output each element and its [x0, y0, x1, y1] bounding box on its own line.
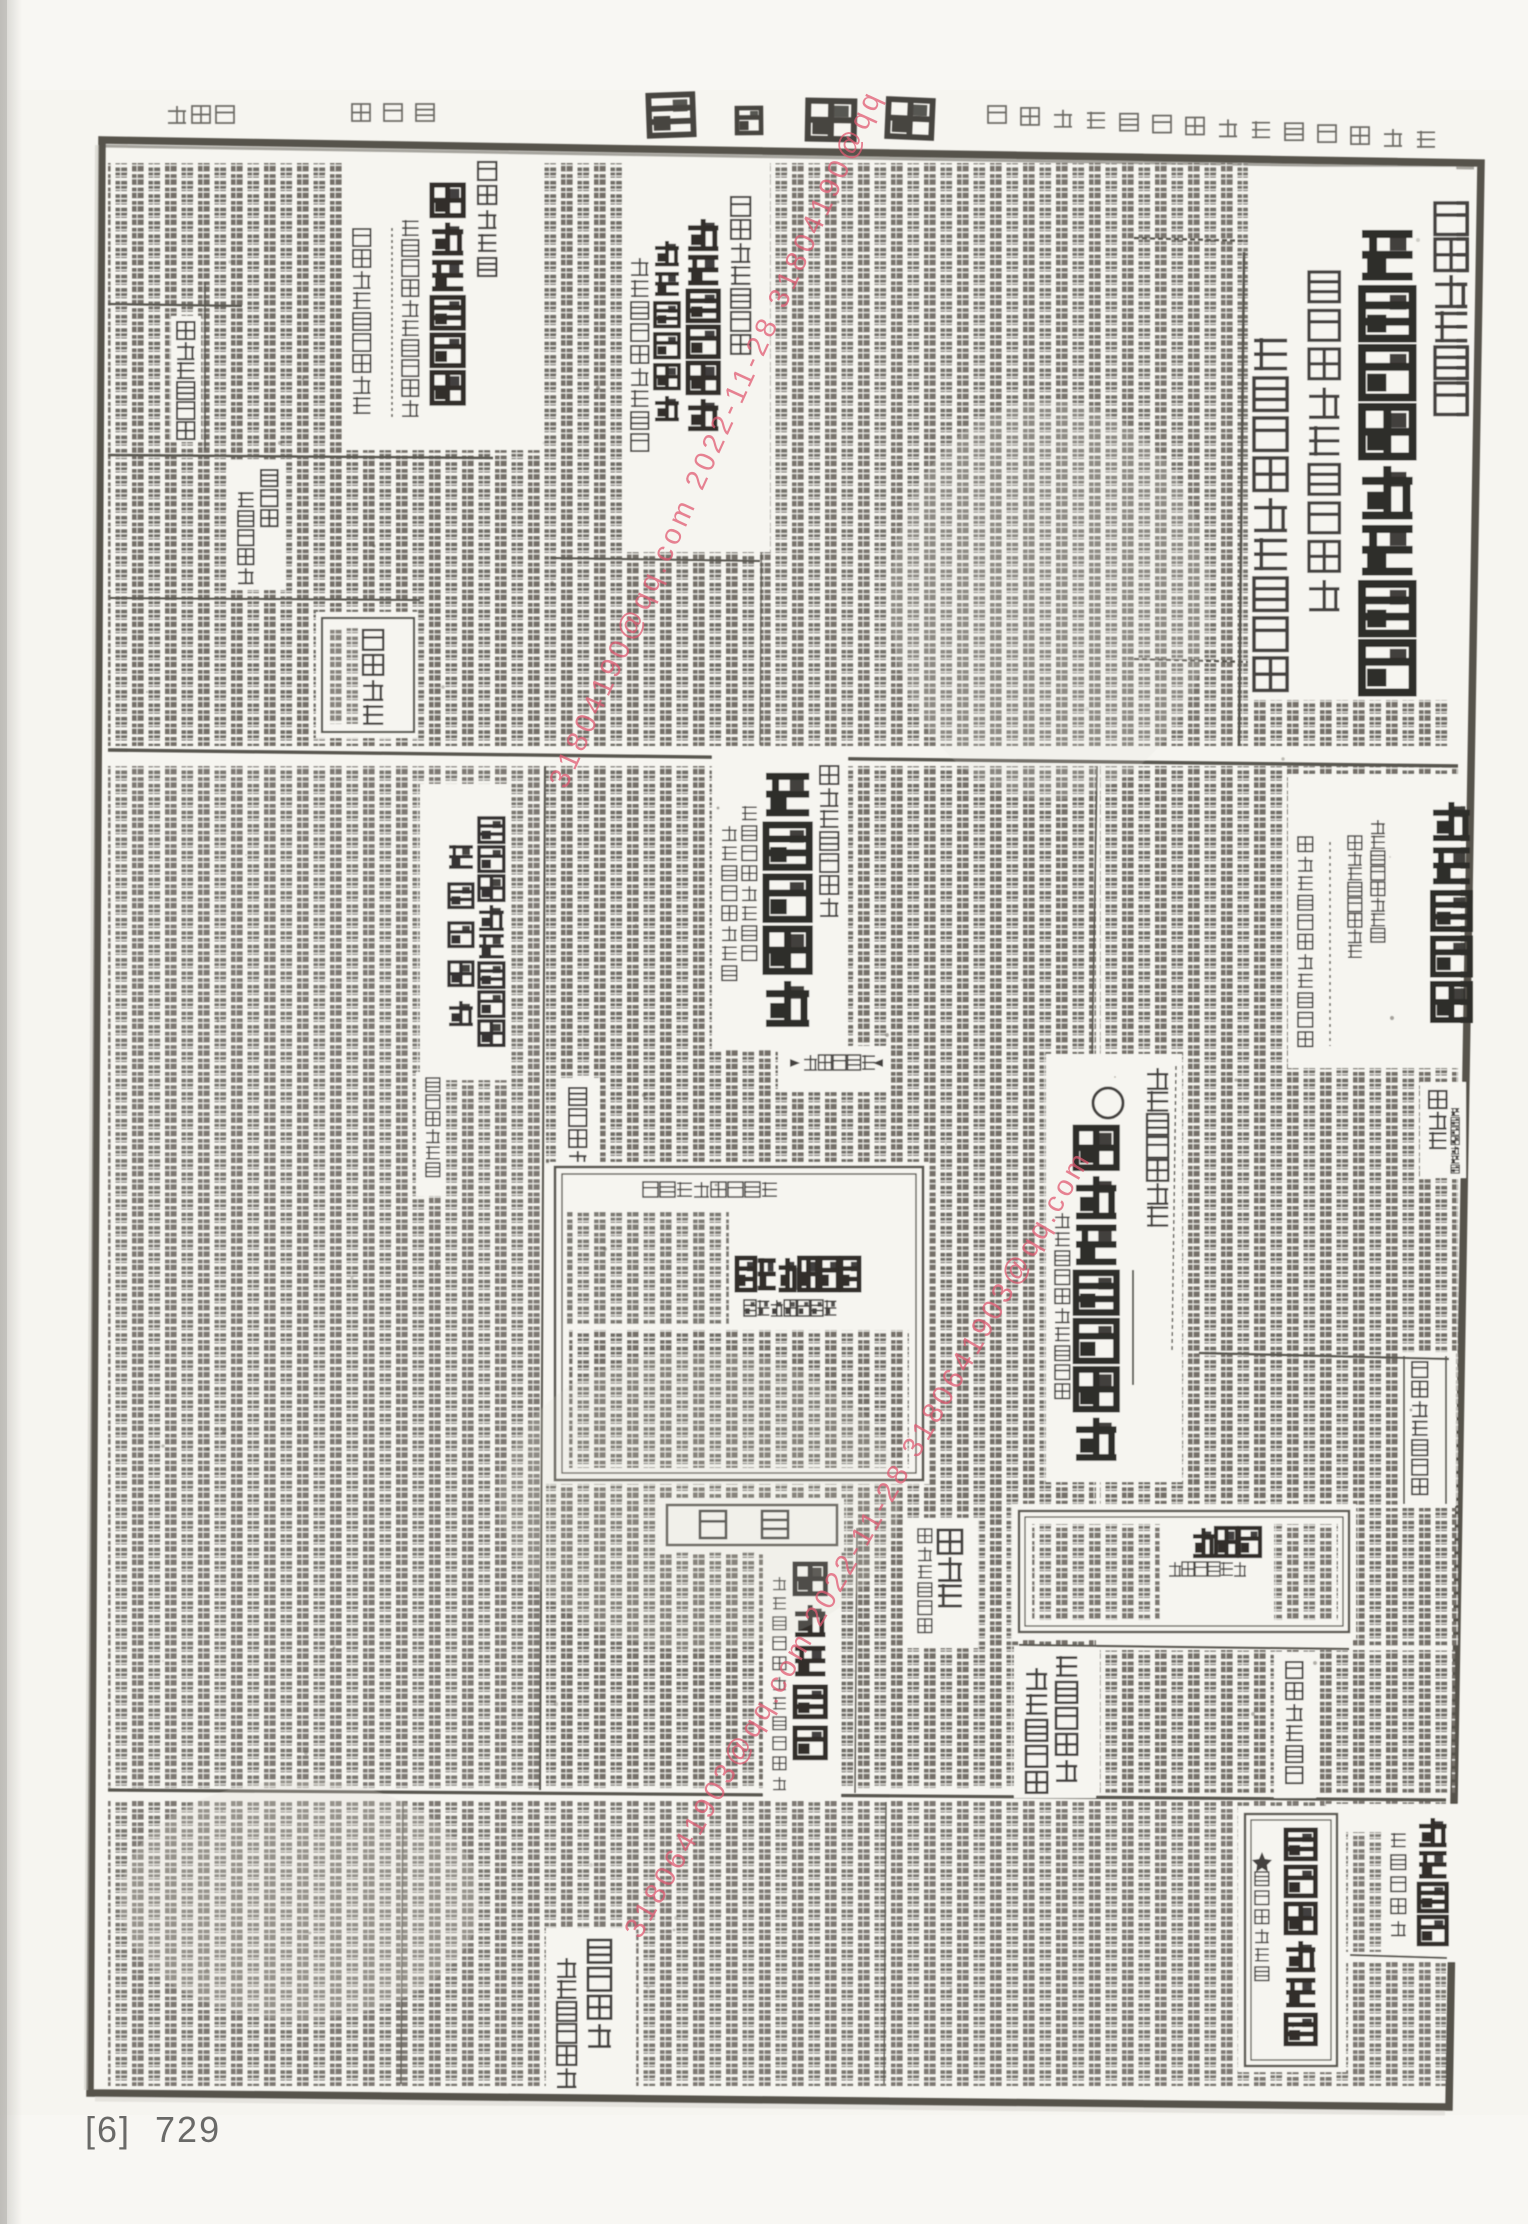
svg-text:[6] 729: [6] 729: [85, 2109, 221, 2150]
